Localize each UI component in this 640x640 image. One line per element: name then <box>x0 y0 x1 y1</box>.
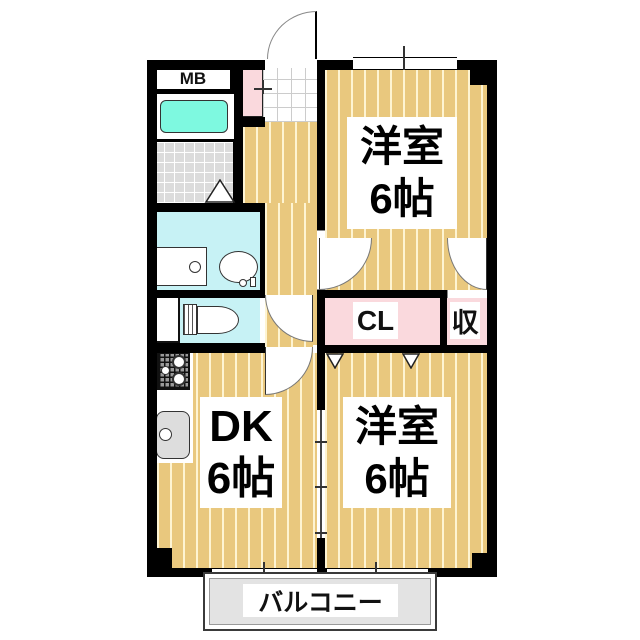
storage-label: 収 <box>452 301 479 340</box>
western-room-bottom-label: 洋室 6帖 <box>343 397 451 508</box>
washbasin-faucet <box>239 279 247 287</box>
storage-label-box: 収 <box>450 302 480 339</box>
wall-closet-bottom <box>317 345 447 353</box>
entrance-door-arc <box>267 11 317 59</box>
meter-box: MB <box>156 68 230 89</box>
sliding-door-tick <box>315 486 327 488</box>
washbasin-handle <box>250 277 256 287</box>
wall-corner-notch-tr <box>470 70 497 85</box>
room-name: DK <box>209 401 273 453</box>
meter-box-label: MB <box>180 69 206 89</box>
stove-burner <box>172 355 186 369</box>
floor-plan: MB CL 収 <box>0 0 640 640</box>
wall-storage-bottom <box>447 345 497 353</box>
stove-knob <box>161 366 170 375</box>
wall-left <box>147 60 157 577</box>
wall-closet-divider <box>440 290 447 353</box>
entrance-tile <box>263 68 317 122</box>
washing-machine-drain <box>189 261 201 273</box>
wall-bottom-2 <box>428 568 497 577</box>
closet-bifold-triangle <box>326 353 344 369</box>
kitchen-faucet <box>159 428 172 441</box>
wall-top-left <box>147 60 265 70</box>
wall-washroom-top <box>152 203 265 212</box>
hallway-floor-upper <box>243 122 317 203</box>
wall-washroom-right <box>260 212 265 298</box>
room-size: 6帖 <box>207 453 275 505</box>
room-name: 洋室 <box>355 401 439 453</box>
entrance-step-mark <box>262 80 264 94</box>
doorway-storage <box>447 290 487 298</box>
sliding-door-tick <box>315 532 327 534</box>
closet-label: CL <box>357 305 394 337</box>
closet-label-box: CL <box>353 302 398 339</box>
balcony-label-box: バルコニー <box>243 584 398 617</box>
window-top <box>353 57 457 70</box>
wall-toilet-bottom <box>147 343 265 353</box>
toilet-tank <box>183 304 197 335</box>
room-name: 洋室 <box>360 121 444 173</box>
wall-right <box>487 60 497 577</box>
sliding-door-line <box>320 410 322 538</box>
wall-hall-right-lower <box>317 538 325 568</box>
wall-closet-top <box>317 290 440 298</box>
balcony-label: バルコニー <box>258 583 383 619</box>
stove-burner <box>172 372 186 386</box>
wall-washroom-bottom <box>150 290 265 298</box>
toilet-bowl <box>197 306 239 334</box>
room-size: 6帖 <box>369 173 434 225</box>
wall-hall-right-upper <box>317 63 325 230</box>
room-size: 6帖 <box>364 453 429 505</box>
western-room-top-label: 洋室 6帖 <box>347 117 457 229</box>
window-top-tick <box>403 46 405 70</box>
bathroom-door-triangle <box>204 179 236 203</box>
sliding-door-tick <box>315 441 327 443</box>
dk-label: DK 6帖 <box>200 397 282 508</box>
wall-shoebox-bottom <box>235 117 265 127</box>
closet-bifold-triangle <box>402 353 420 369</box>
bathtub <box>160 100 228 133</box>
